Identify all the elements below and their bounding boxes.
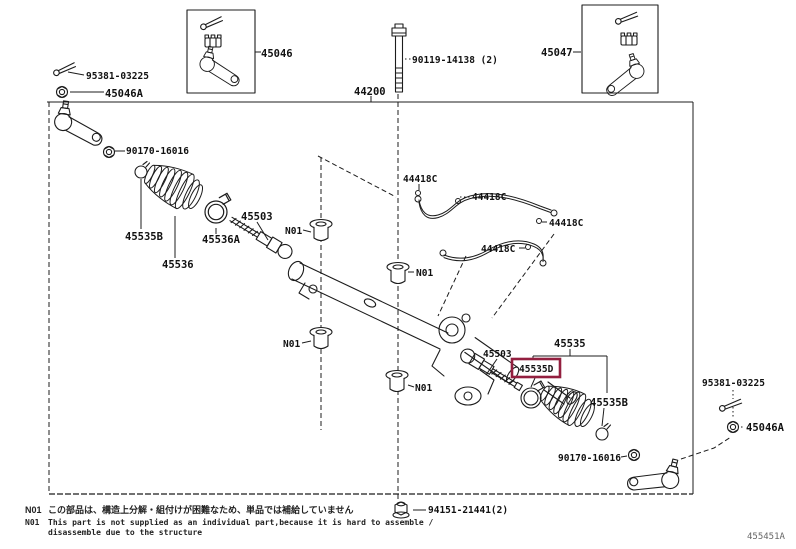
boot-clip-drawing-45535b [596,424,611,441]
note-text-en-line1: This part is not supplied as an individu… [48,517,433,527]
nut-drawing-90170-left [104,147,115,158]
parts-diagram-canvas: 95381-03225 45046A 45046 45047 44200 901… [0,0,796,549]
part-label-45535b-right[interactable]: 45535B [590,397,628,409]
nut-drawing-45046a-top [57,87,68,98]
part-label-45047[interactable]: 45047 [541,47,573,59]
kit-box-45046 [187,10,255,93]
part-label-45046a-top[interactable]: 45046A [105,88,144,100]
part-label-44418c-1[interactable]: 44418C [403,174,438,185]
nut-drawing-94151 [393,502,409,518]
part-label-n01-1[interactable]: N01 [285,226,302,237]
part-label-45046a-right[interactable]: 45046A [746,422,785,434]
cotter-pin-drawing-right [719,399,743,411]
boot-drawing-left [139,156,208,216]
part-label-45536[interactable]: 45536 [162,259,194,271]
note-text-en-line2: disassemble due to the structure [48,527,202,537]
nut-drawing-90170-right [629,450,640,461]
grommet-n01-1 [310,220,332,241]
part-label-95381-top[interactable]: 95381-03225 [86,71,149,82]
cotter-pin-drawing-top-left [53,63,77,77]
boot-clamp-drawing-45536a [205,193,231,223]
part-label-44418c-4[interactable]: 44418C [481,244,516,255]
part-label-45046[interactable]: 45046 [261,48,293,60]
part-label-44418c-3[interactable]: 44418C [549,218,584,229]
part-label-45535d-highlighted[interactable]: 45535D [519,364,554,375]
grommet-n01-2 [387,263,409,284]
kit-box-45047 [582,5,658,97]
note-tag-jp: N01 [25,505,42,515]
steering-gear-diagram: 95381-03225 45046A 45046 45047 44200 901… [0,0,796,549]
part-label-95381-right[interactable]: 95381-03225 [702,378,765,389]
figure-code: 455451A [747,532,786,542]
note-text-jp: この部品は、構造上分解・組付けが困難なため、単品では補給していません [48,504,353,515]
tie-rod-end-drawing-left [52,100,106,146]
boot-clamp-ring-left [135,162,150,179]
construction-lines [318,94,733,502]
part-label-90119[interactable]: 90119-14138 (2) [412,55,498,66]
part-label-94151[interactable]: 94151-21441(2) [428,505,508,516]
bolt-drawing-90119 [392,24,406,92]
leader-95381-top [68,72,84,75]
grommet-n01-4 [386,371,408,392]
part-label-45535b-left[interactable]: 45535B [125,231,163,243]
part-label-90170-right[interactable]: 90170-16016 [558,453,621,464]
nut-drawing-45046a-right [728,422,739,433]
part-label-44200[interactable]: 44200 [354,86,386,98]
grommet-n01-3 [310,328,332,349]
part-label-45503-left[interactable]: 45503 [241,211,273,223]
part-label-45503-right[interactable]: 45503 [483,349,512,360]
part-label-n01-4[interactable]: N01 [415,383,432,394]
note-tag-en: N01 [25,518,40,527]
part-label-45536a[interactable]: 45536A [202,234,241,246]
part-label-n01-2[interactable]: N01 [416,268,433,279]
part-label-45535[interactable]: 45535 [554,338,586,350]
leader-45503-left [257,222,268,240]
part-label-n01-3[interactable]: N01 [283,339,300,350]
part-label-44418c-2[interactable]: 44418C [472,192,507,203]
part-label-90170-left[interactable]: 90170-16016 [126,146,189,157]
